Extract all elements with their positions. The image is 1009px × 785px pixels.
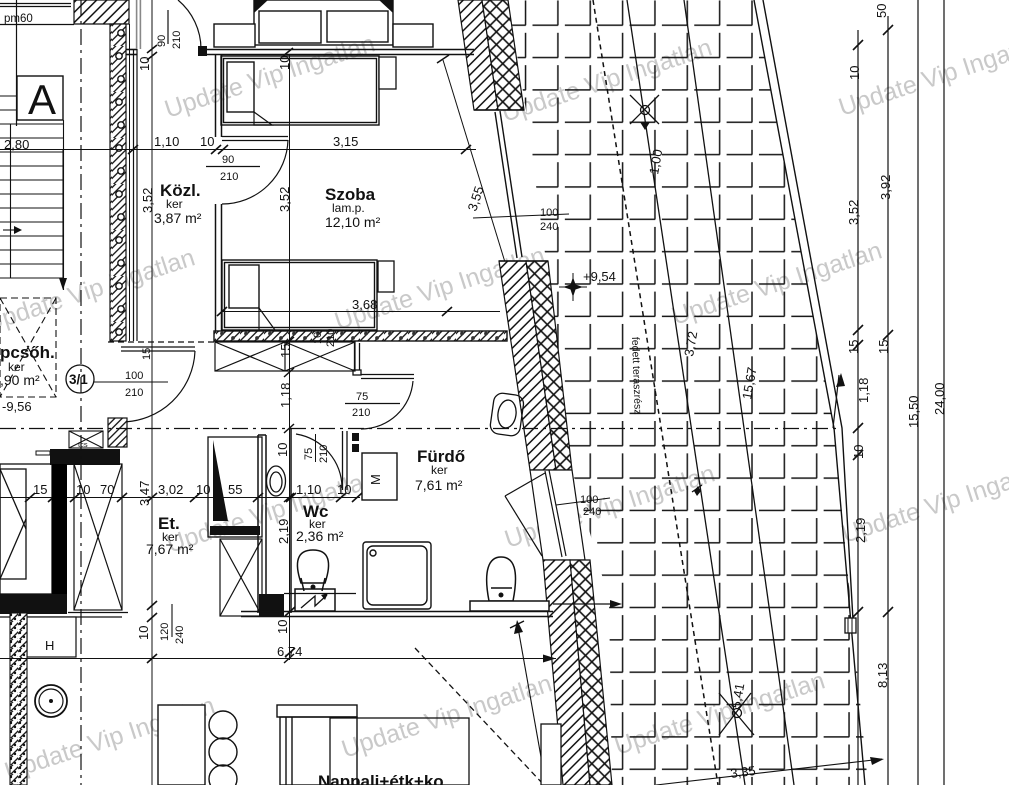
svg-text:3,47: 3,47 <box>137 481 152 506</box>
svg-text:10: 10 <box>76 482 90 497</box>
svg-text:10: 10 <box>275 620 290 634</box>
svg-text:10: 10 <box>847 66 862 80</box>
svg-text:2,36 m²: 2,36 m² <box>296 528 344 544</box>
svg-text:3,87 m²: 3,87 m² <box>154 210 202 226</box>
svg-text:120: 120 <box>159 623 171 641</box>
svg-text:2,19: 2,19 <box>853 518 868 543</box>
svg-text:10: 10 <box>136 626 151 640</box>
svg-text:240: 240 <box>174 626 186 644</box>
svg-text:15: 15 <box>141 348 153 360</box>
svg-text:pm60: pm60 <box>4 13 33 25</box>
svg-text:-9,56: -9,56 <box>2 399 32 414</box>
svg-text:15: 15 <box>33 482 47 497</box>
svg-text:100: 100 <box>540 207 558 219</box>
svg-text:6,74: 6,74 <box>277 644 302 659</box>
svg-text:Nappali+étk+ko: Nappali+étk+ko <box>318 772 444 785</box>
svg-text:75: 75 <box>356 391 368 403</box>
svg-text:90: 90 <box>222 154 234 166</box>
svg-text:240: 240 <box>540 221 558 233</box>
svg-text:12,10 m²: 12,10 m² <box>325 214 381 230</box>
svg-text:90: 90 <box>156 35 168 47</box>
svg-text:3/1: 3/1 <box>69 372 88 387</box>
svg-text:3,52: 3,52 <box>277 187 292 212</box>
svg-text:H: H <box>45 638 54 653</box>
svg-text:1,18: 1,18 <box>278 383 293 408</box>
svg-text:3,15: 3,15 <box>333 134 358 149</box>
svg-text:ker: ker <box>166 197 183 211</box>
svg-text:10: 10 <box>277 56 292 70</box>
svg-text:1,10: 1,10 <box>154 134 179 149</box>
svg-text:210: 210 <box>220 171 238 183</box>
svg-text:100: 100 <box>125 370 143 382</box>
svg-text:55: 55 <box>228 482 242 497</box>
svg-text:lam.p.: lam.p. <box>332 201 365 215</box>
svg-text:3,68: 3,68 <box>352 297 377 312</box>
svg-text:75: 75 <box>303 448 315 460</box>
svg-text:1,10: 1,10 <box>296 482 321 497</box>
svg-text:3,92: 3,92 <box>878 175 893 200</box>
svg-text:2,19: 2,19 <box>276 519 291 544</box>
svg-text:1,18: 1,18 <box>856 378 871 403</box>
svg-text:A: A <box>28 76 56 123</box>
svg-text:15: 15 <box>278 344 293 358</box>
svg-text:50: 50 <box>874 4 889 18</box>
svg-text:210: 210 <box>125 387 143 399</box>
svg-text:24,00: 24,00 <box>932 382 947 415</box>
svg-text:tcs: tcs <box>78 440 88 449</box>
svg-text:3,52: 3,52 <box>846 200 861 225</box>
svg-text:10: 10 <box>851 445 866 459</box>
svg-text:210: 210 <box>171 31 183 49</box>
svg-text:210: 210 <box>318 445 330 463</box>
svg-text:15: 15 <box>876 340 891 354</box>
svg-text:15: 15 <box>846 340 861 354</box>
svg-text:100: 100 <box>580 494 598 506</box>
svg-text:3,52: 3,52 <box>140 188 155 213</box>
svg-text:10: 10 <box>275 443 290 457</box>
svg-text:3,35: 3,35 <box>730 763 757 781</box>
svg-text:3,02: 3,02 <box>158 482 183 497</box>
svg-text:,90 m²: ,90 m² <box>0 372 40 388</box>
svg-text:10: 10 <box>196 482 210 497</box>
svg-text:7,61 m²: 7,61 m² <box>415 477 463 493</box>
svg-text:210: 210 <box>352 407 370 419</box>
svg-text:+9,54: +9,54 <box>583 269 616 284</box>
svg-text:10: 10 <box>200 134 214 149</box>
svg-text:7,67 m²: 7,67 m² <box>146 541 194 557</box>
svg-text:8,13: 8,13 <box>875 663 890 688</box>
svg-text:M: M <box>368 474 383 485</box>
svg-text:240: 240 <box>583 506 601 518</box>
svg-text:15,50: 15,50 <box>906 395 921 428</box>
svg-text:ker: ker <box>431 463 448 477</box>
svg-text:210: 210 <box>325 329 337 347</box>
svg-text:10: 10 <box>337 482 351 497</box>
